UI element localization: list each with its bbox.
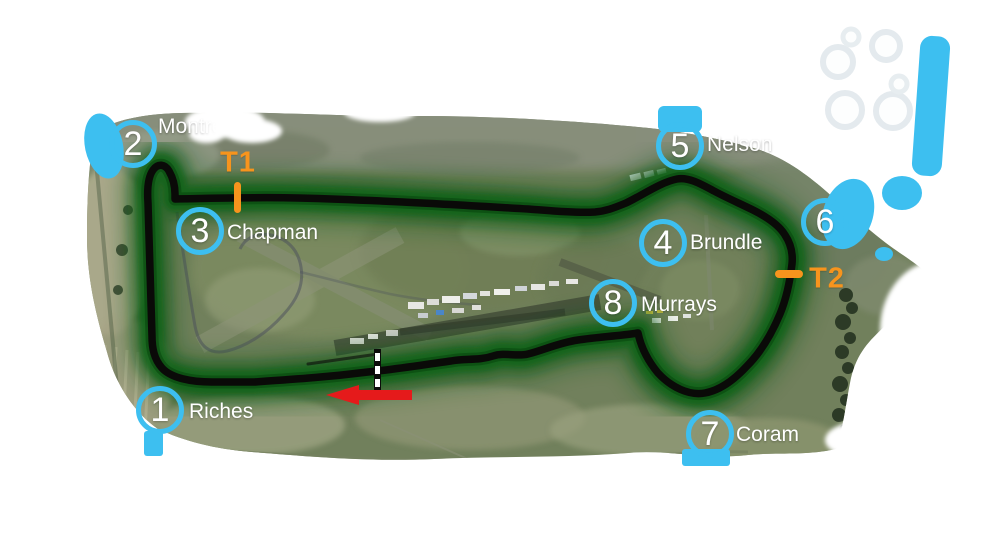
cyan-tab-turn1 xyxy=(144,431,163,456)
aerial-photo xyxy=(68,95,960,475)
cyan-dot-right xyxy=(875,247,893,261)
cyan-tab-turn7 xyxy=(682,449,730,466)
sector-t2-bar xyxy=(775,270,803,278)
cyan-tab-turn5 xyxy=(658,106,702,132)
cyan-blob-right xyxy=(882,176,922,210)
sector-t1-bar xyxy=(234,182,241,213)
aerial-map-svg xyxy=(0,0,1000,535)
cyan-band-right xyxy=(911,35,951,177)
circuit-map: 1Riches2Montreal3Chapman4Brundle5Nelson6… xyxy=(0,0,1000,535)
start-finish-line xyxy=(374,349,381,390)
